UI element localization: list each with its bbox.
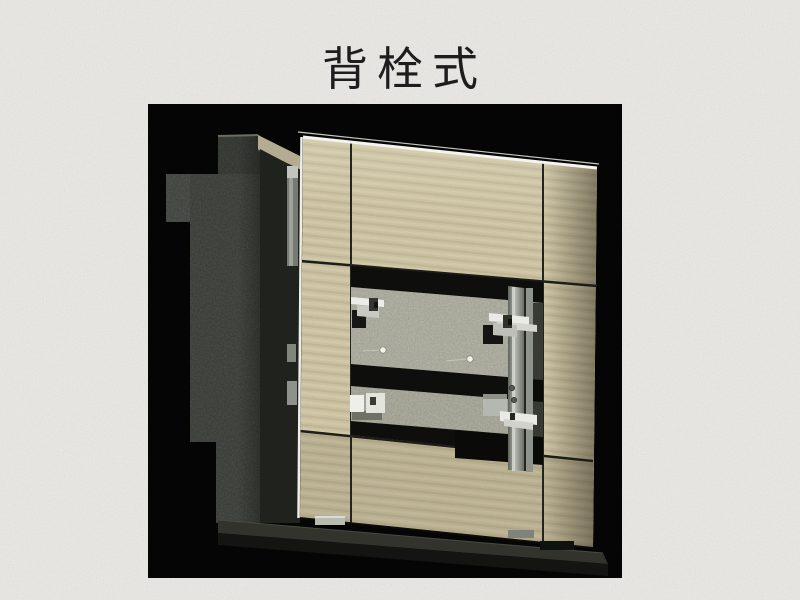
wall-cavity xyxy=(260,149,300,523)
back-bolt-anchor-lower-left xyxy=(350,393,385,420)
vertical-rail-right xyxy=(508,286,533,472)
slide-title: 背栓式 xyxy=(0,45,800,93)
figure-3d-render xyxy=(148,104,622,578)
stone-panel-right-column xyxy=(543,162,597,548)
slide-background: 背栓式 xyxy=(0,0,800,600)
rail-clip xyxy=(287,166,298,178)
